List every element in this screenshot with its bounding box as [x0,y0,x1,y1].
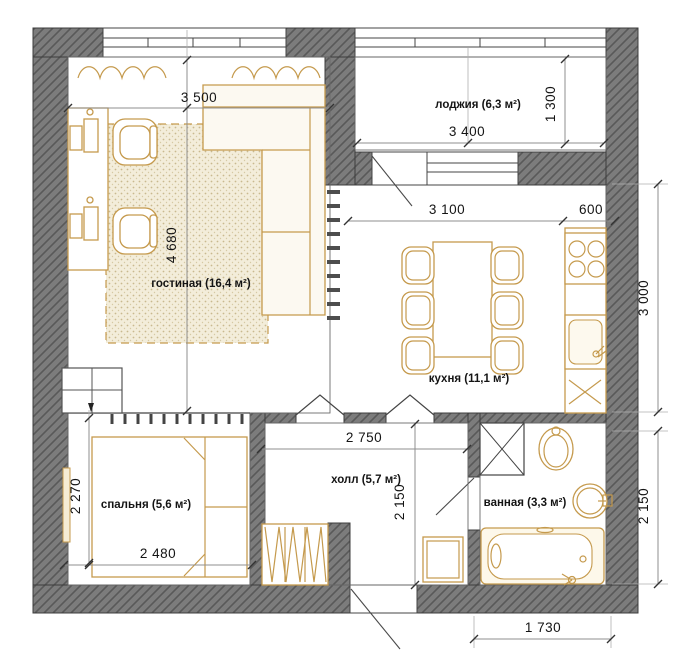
room-label-living: гостиная (16,4 м²) [151,278,251,290]
bedroom-wardrobe-rail [68,413,250,424]
shoe-bench [423,537,463,582]
stove-icon [565,233,606,284]
dim-bathroom-width: 1 730 [525,620,561,635]
removed-wall-dashes [327,192,340,318]
kitchen-sink-icon [565,315,606,369]
dim-kitchen-width: 3 100 [429,202,465,217]
washing-machine-icon [480,423,524,475]
loggia-window [355,28,606,57]
dim-hall-width: 2 750 [346,430,382,445]
desk [68,108,108,270]
dining-table [433,242,492,357]
loggia-kitchen-door [372,152,427,206]
room-label-loggia: лоджия (6,3 м²) [435,99,521,111]
dim-bedroom-width: 2 480 [140,546,176,561]
dim-loggia-depth: 1 300 [543,86,558,122]
room-label-bedroom: спальня (5,6 м²) [101,499,191,511]
dim-living-depth: 4 680 [164,227,179,263]
room-label-bathroom: ванная (3,3 м²) [484,497,567,509]
dim-loggia-width: 3 400 [449,124,485,139]
room-label-hall: холл (5,7 м²) [331,474,401,486]
room-label-kitchen: кухня (11,1 м²) [429,373,510,385]
dim-kitchen-depth: 3 000 [636,280,651,316]
living-window [103,28,286,57]
dim-bedroom-depth: 2 270 [68,478,83,514]
toilet-icon [539,427,573,470]
curtains-icon [78,67,320,78]
office-chair [113,208,157,254]
floor-plan-drawing: 3 500 4 680 3 400 1 300 3 100 600 3 000 … [0,0,695,667]
dim-living-width: 3 500 [181,90,217,105]
dim-counter-depth: 600 [579,202,603,217]
bathtub-icon [481,528,604,586]
dim-hall-depth: 2 150 [392,484,407,520]
hall-wardrobe [262,524,328,585]
floor-plan: 3 500 4 680 3 400 1 300 3 100 600 3 000 … [0,0,695,667]
dim-bathroom-depth: 2 150 [636,488,651,524]
entrance-door [350,585,417,649]
loggia-kitchen-window [427,152,518,185]
office-chair [113,119,157,165]
doorway-peaks [296,395,434,415]
